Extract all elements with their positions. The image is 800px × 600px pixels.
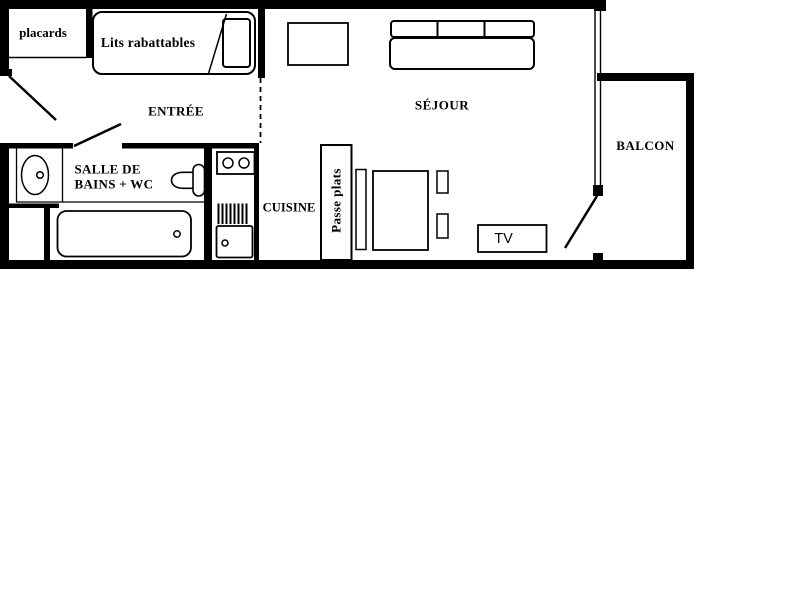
svg-text:SÉJOUR: SÉJOUR — [415, 98, 469, 113]
svg-text:Passe plats: Passe plats — [329, 168, 344, 233]
svg-text:BALCON: BALCON — [616, 138, 675, 153]
svg-text:placards: placards — [19, 25, 67, 40]
svg-text:BAINS + WC: BAINS + WC — [75, 177, 154, 192]
svg-text:Lits rabattables: Lits rabattables — [101, 35, 195, 50]
svg-text:TV: TV — [494, 231, 513, 247]
svg-text:SALLE DE: SALLE DE — [75, 162, 141, 177]
svg-text:ENTRÉE: ENTRÉE — [148, 104, 204, 119]
svg-text:CUISINE: CUISINE — [263, 201, 316, 215]
